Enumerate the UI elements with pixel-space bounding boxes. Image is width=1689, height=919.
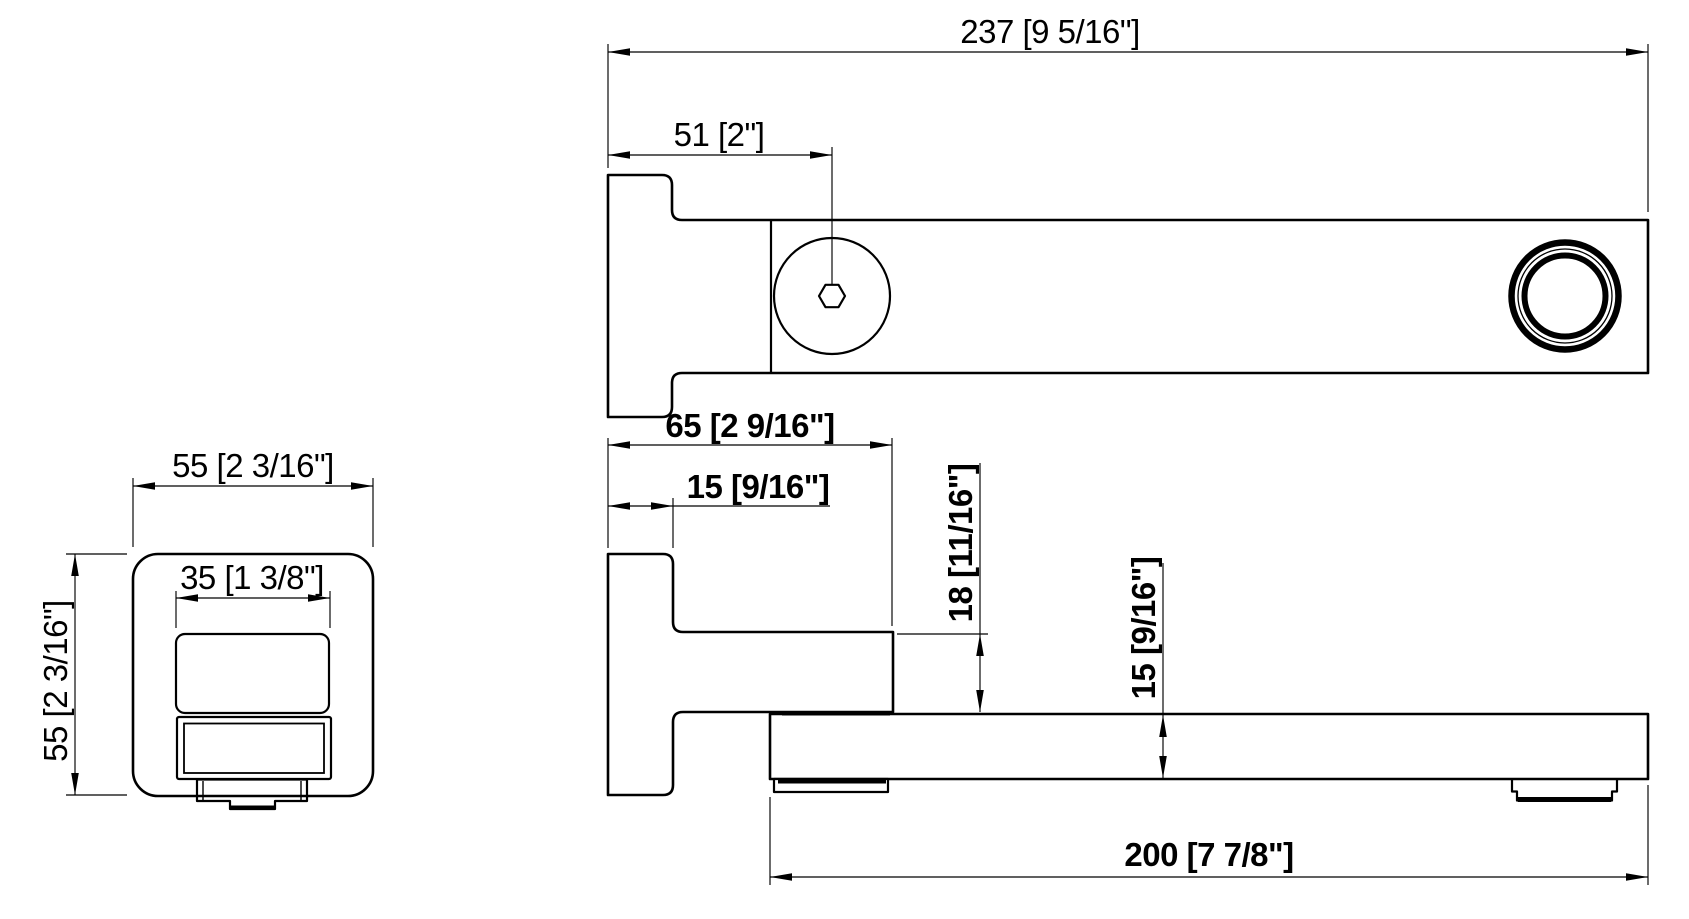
- front-view: 55 [2 3/16"] 55 [2 3/16"] 35 [1 3/8"]: [37, 447, 373, 809]
- dim-body-height: 18 [11/16"]: [897, 463, 988, 712]
- dim-plate-height: 55 [2 3/16"]: [37, 554, 127, 795]
- top-view: 237 [9 5/16"] 51 [2"]: [608, 13, 1648, 417]
- front-view-bar-end-outer: [177, 717, 331, 779]
- drawing-canvas: 237 [9 5/16"] 51 [2"] 65 [2 9/16"]: [0, 0, 1689, 919]
- dim-flange-thickness-label: 15 [9/16"]: [687, 468, 830, 505]
- dim-flange-thickness: 15 [9/16"]: [608, 468, 830, 548]
- dim-outlet-width-label: 35 [1 3/8"]: [180, 559, 324, 596]
- dim-projection-label: 65 [2 9/16"]: [665, 407, 834, 444]
- dim-overall-length: 237 [9 5/16"]: [608, 13, 1648, 212]
- top-view-body-outline: [608, 175, 1648, 417]
- dim-plate-width: 55 [2 3/16"]: [133, 447, 373, 547]
- dim-plate-width-label: 55 [2 3/16"]: [172, 447, 334, 484]
- side-view: 65 [2 9/16"] 15 [9/16"] 18 [11/16"] 15 […: [608, 407, 1648, 885]
- dim-reach-label: 200 [7 7/8"]: [1124, 836, 1293, 873]
- dim-overall-length-label: 237 [9 5/16"]: [960, 13, 1140, 50]
- spout-dimension-drawing: 237 [9 5/16"] 51 [2"] 65 [2 9/16"]: [0, 0, 1689, 919]
- dim-body-height-label: 18 [11/16"]: [942, 464, 979, 623]
- side-view-spout-bar: [770, 714, 1648, 779]
- dim-plate-height-label: 55 [2 3/16"]: [37, 600, 74, 762]
- dim-setscrew-offset-label: 51 [2"]: [674, 116, 765, 153]
- front-view-neck-face: [176, 634, 329, 713]
- dim-spout-height-label: 15 [9/16"]: [1125, 557, 1162, 700]
